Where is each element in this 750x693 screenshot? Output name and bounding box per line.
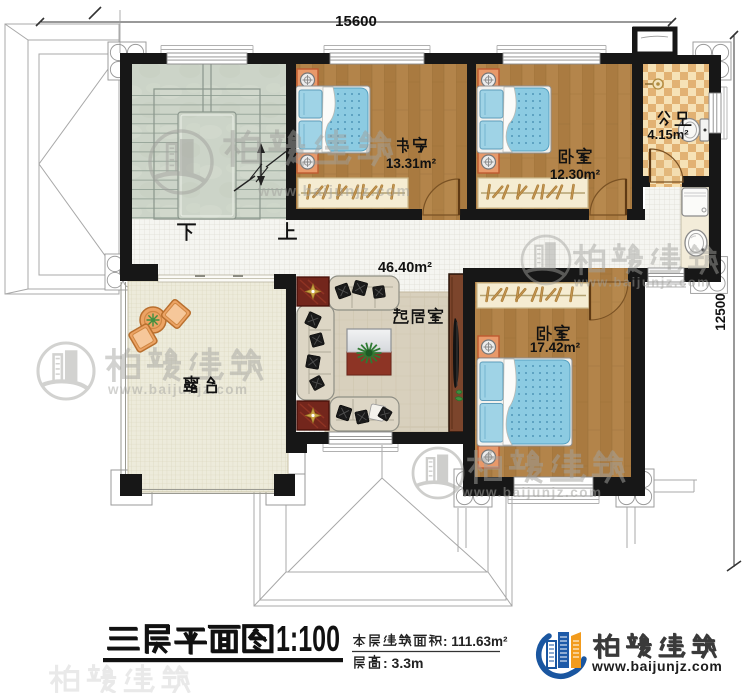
- svg-text:13.31m²: 13.31m²: [386, 156, 437, 171]
- svg-text:12.30m²: 12.30m²: [550, 167, 601, 182]
- svg-text:: 3.3m: : 3.3m: [383, 655, 423, 671]
- svg-text:: 111.63m²: : 111.63m²: [443, 634, 508, 649]
- svg-text:17.42m²: 17.42m²: [530, 340, 581, 355]
- svg-text:12500: 12500: [713, 293, 728, 331]
- svg-text:4.15m²: 4.15m²: [647, 127, 689, 142]
- svg-text:www.baijunjz.com: www.baijunjz.com: [573, 274, 710, 289]
- svg-text:www.baijunjz.com: www.baijunjz.com: [257, 183, 411, 200]
- svg-text:1:100: 1:100: [276, 618, 340, 659]
- svg-text:46.40m²: 46.40m²: [378, 260, 432, 276]
- svg-text:15600: 15600: [335, 13, 377, 30]
- svg-text:www.baijunjz.com: www.baijunjz.com: [591, 658, 722, 674]
- svg-text:www.baijunjz.com: www.baijunjz.com: [461, 485, 603, 500]
- svg-text:www.baijunjz.com: www.baijunjz.com: [107, 382, 249, 397]
